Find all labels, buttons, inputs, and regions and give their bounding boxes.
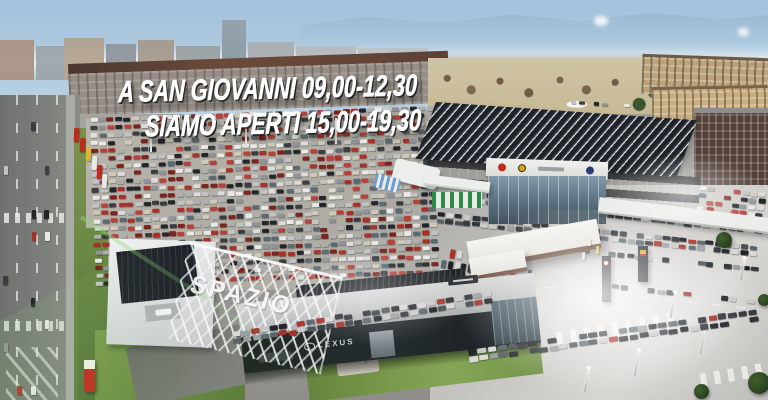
car (153, 233, 160, 237)
car (307, 325, 316, 331)
car (125, 163, 132, 167)
car (379, 217, 386, 221)
car (346, 234, 353, 238)
car (167, 155, 174, 159)
car (262, 221, 269, 225)
car (344, 320, 353, 326)
car (404, 216, 411, 220)
car (404, 200, 411, 204)
car (617, 253, 625, 258)
car (94, 242, 101, 246)
car (679, 237, 687, 242)
car (235, 167, 242, 171)
car (427, 300, 436, 306)
car (96, 274, 103, 278)
car (193, 192, 200, 196)
car (253, 213, 260, 217)
car (372, 256, 379, 260)
car (193, 184, 200, 188)
car (411, 192, 418, 196)
car (418, 302, 427, 308)
car (186, 200, 193, 204)
car (353, 163, 360, 167)
car (277, 173, 284, 177)
car (177, 177, 184, 181)
car (385, 147, 392, 151)
car (381, 255, 388, 259)
car (320, 179, 327, 183)
car (270, 324, 279, 330)
car (236, 214, 243, 218)
car (464, 294, 473, 300)
car (328, 218, 335, 222)
car (219, 207, 226, 211)
car (243, 152, 250, 156)
car (269, 206, 276, 210)
car (202, 208, 209, 212)
car (387, 209, 394, 213)
car (330, 242, 337, 246)
car (135, 210, 142, 214)
car (271, 229, 278, 233)
car (347, 265, 354, 269)
car (724, 264, 732, 269)
spazio-totem (84, 360, 95, 392)
car (210, 207, 217, 211)
car (245, 238, 252, 242)
totem-logo-shield (640, 250, 646, 256)
car (645, 240, 653, 245)
car (360, 147, 367, 151)
car (31, 386, 36, 395)
car (184, 169, 191, 173)
car (201, 176, 208, 180)
car (346, 225, 353, 229)
car (106, 117, 113, 121)
car (244, 206, 251, 210)
car (421, 223, 428, 227)
car (294, 149, 301, 153)
car (430, 239, 437, 243)
car (253, 237, 260, 241)
car (314, 258, 321, 262)
car (262, 229, 269, 233)
car (226, 184, 233, 188)
car (135, 194, 142, 198)
car (184, 161, 191, 165)
car (455, 296, 464, 302)
car (201, 145, 208, 149)
car (116, 164, 123, 168)
car (758, 192, 765, 197)
car (225, 145, 232, 149)
car (362, 310, 371, 316)
car (269, 159, 276, 163)
car (369, 162, 376, 166)
car (253, 222, 260, 226)
car (477, 348, 486, 354)
office-building (694, 108, 768, 188)
car (175, 169, 182, 173)
car (243, 190, 250, 194)
car (385, 139, 392, 143)
car (219, 199, 226, 203)
car (629, 334, 638, 340)
car (202, 223, 209, 227)
car (422, 239, 429, 243)
car (178, 201, 185, 205)
car (428, 306, 437, 312)
car (279, 236, 286, 240)
car (354, 226, 361, 230)
brand-totem (602, 256, 611, 302)
car (117, 187, 124, 191)
car (159, 178, 166, 182)
car (370, 194, 377, 198)
car (192, 153, 199, 157)
car (95, 281, 102, 285)
car (243, 159, 250, 163)
car (203, 200, 210, 204)
opening-hours-overlay: A SAN GIOVANNI 09,00-12,30 SIAMO APERTI … (118, 69, 535, 143)
car (90, 126, 97, 130)
car (261, 197, 268, 201)
car (244, 175, 251, 179)
car (143, 193, 150, 197)
car (518, 342, 527, 348)
car (328, 180, 335, 184)
car (288, 329, 297, 335)
car (95, 259, 102, 263)
pedestrian (368, 350, 370, 355)
car (579, 102, 585, 105)
glass-wing (490, 297, 540, 346)
car (361, 170, 368, 174)
car (309, 157, 316, 161)
car (110, 195, 117, 199)
car (169, 177, 176, 181)
car (344, 179, 351, 183)
car (142, 155, 149, 159)
car (369, 147, 376, 151)
car (304, 220, 311, 224)
car (482, 291, 491, 297)
car (176, 146, 183, 150)
car (677, 319, 686, 325)
car (195, 231, 202, 235)
aerial-dealership-photo: SPAZIO LEXUS A SAN GIOVANNI 09,00-12,30 (0, 0, 768, 400)
car (732, 243, 740, 248)
car (465, 301, 474, 307)
car (208, 145, 215, 149)
car (415, 263, 422, 267)
car (44, 210, 49, 219)
car (202, 184, 209, 188)
car (313, 227, 320, 231)
car (17, 386, 22, 395)
car (142, 163, 149, 167)
brand-logo-red (498, 163, 506, 171)
car (355, 272, 362, 276)
car (389, 248, 396, 252)
car (627, 253, 635, 258)
car (469, 356, 478, 362)
car (92, 196, 99, 200)
car (210, 184, 217, 188)
car (445, 297, 454, 303)
car (380, 232, 387, 236)
car (245, 222, 252, 226)
car (285, 158, 292, 162)
car (688, 239, 696, 244)
car (109, 179, 116, 183)
car (411, 146, 418, 150)
car (254, 245, 261, 249)
car (236, 206, 243, 210)
car (345, 203, 352, 207)
car (153, 225, 160, 229)
car (176, 193, 183, 197)
car (327, 141, 334, 145)
car (326, 156, 333, 160)
car (269, 174, 276, 178)
car (348, 257, 355, 261)
car (262, 214, 269, 218)
car (243, 167, 250, 171)
car (201, 169, 208, 173)
car (218, 168, 225, 172)
car (252, 182, 259, 186)
car (93, 211, 100, 215)
car (152, 217, 159, 221)
car (270, 332, 279, 338)
car (177, 208, 184, 212)
car (353, 202, 360, 206)
car (218, 144, 225, 148)
car (150, 162, 157, 166)
car (313, 235, 320, 239)
car (479, 354, 488, 360)
car (294, 181, 301, 185)
car (100, 148, 107, 152)
car (177, 232, 184, 236)
car (159, 155, 166, 159)
car (95, 251, 102, 255)
car (396, 216, 403, 220)
car (168, 200, 175, 204)
car (4, 166, 9, 175)
car (260, 151, 267, 155)
car (599, 338, 608, 344)
car (609, 336, 618, 342)
car (498, 352, 507, 358)
car (169, 231, 176, 235)
car (680, 326, 689, 332)
car (310, 149, 317, 153)
car (201, 160, 208, 164)
car (359, 155, 366, 159)
car (322, 250, 329, 254)
car (285, 181, 292, 185)
car (151, 170, 158, 174)
brand-totem (638, 246, 648, 282)
car (306, 319, 315, 325)
car (151, 178, 158, 182)
car (354, 234, 361, 238)
car (296, 251, 303, 255)
showroom-door (369, 330, 396, 358)
car (698, 261, 706, 266)
car (343, 147, 350, 151)
car (110, 211, 117, 215)
flag-banner (80, 138, 86, 152)
car (302, 157, 309, 161)
car (251, 166, 258, 170)
car (227, 160, 234, 164)
car (187, 232, 194, 236)
car (404, 192, 411, 196)
car (389, 232, 396, 236)
car (119, 195, 126, 199)
car (278, 221, 285, 225)
car (371, 210, 378, 214)
car (193, 169, 200, 173)
car (468, 349, 477, 355)
car (260, 174, 267, 178)
car (708, 315, 717, 321)
car (168, 193, 175, 197)
car (336, 322, 345, 328)
car (304, 250, 311, 254)
car (489, 353, 498, 359)
car (356, 265, 363, 269)
car (343, 140, 350, 144)
entrance-glass (488, 176, 606, 224)
car (168, 186, 175, 190)
car (456, 250, 462, 259)
car (297, 327, 306, 333)
car (351, 147, 358, 151)
car (276, 165, 283, 169)
car (322, 265, 329, 269)
car (437, 305, 446, 311)
car (336, 195, 343, 199)
car (201, 152, 208, 156)
car (310, 164, 317, 168)
car (278, 228, 285, 232)
car (377, 146, 384, 150)
car (337, 203, 344, 207)
car (412, 215, 419, 219)
flag-banner (86, 147, 92, 161)
car (184, 146, 191, 150)
car (343, 314, 352, 320)
car (363, 209, 370, 213)
car (371, 201, 378, 205)
car (750, 192, 757, 197)
car (211, 230, 218, 234)
car (312, 203, 319, 207)
car (108, 141, 115, 145)
car (227, 199, 234, 203)
car (295, 205, 302, 209)
tree (748, 372, 768, 394)
car (379, 210, 386, 214)
car (102, 235, 109, 239)
car (376, 139, 383, 143)
car (354, 319, 363, 325)
car (445, 219, 453, 224)
car (201, 192, 208, 196)
car (728, 312, 737, 318)
car (368, 155, 375, 159)
car (409, 138, 416, 142)
car (594, 102, 600, 105)
car (297, 258, 304, 262)
car (279, 252, 286, 256)
car (292, 142, 299, 146)
car (321, 234, 328, 238)
car (99, 126, 106, 130)
car (279, 330, 288, 336)
car (547, 338, 556, 344)
car (31, 298, 36, 307)
car (378, 162, 385, 166)
car (406, 247, 413, 251)
car (578, 333, 587, 339)
car (45, 232, 50, 241)
car (101, 203, 108, 207)
car (317, 324, 326, 330)
car (133, 155, 140, 159)
car (395, 193, 402, 197)
car (252, 335, 261, 341)
car (126, 178, 133, 182)
car (329, 203, 336, 207)
car (305, 258, 312, 262)
brand-logo-blue (586, 166, 594, 174)
car (365, 264, 372, 268)
car (135, 226, 142, 230)
car (178, 216, 185, 220)
car (268, 197, 275, 201)
car (429, 223, 436, 227)
car (4, 343, 9, 352)
service-station (424, 178, 490, 216)
car (732, 203, 739, 208)
car (697, 246, 705, 251)
car (296, 220, 303, 224)
car (431, 231, 438, 235)
car (402, 154, 409, 158)
car (168, 216, 175, 220)
car (119, 203, 126, 207)
totem-logo-red-circle (603, 260, 609, 266)
car (220, 223, 227, 227)
car (302, 180, 309, 184)
car (118, 210, 125, 214)
car (356, 257, 363, 261)
car (414, 232, 421, 236)
car (107, 125, 114, 129)
car (373, 264, 380, 268)
car (364, 272, 371, 276)
car (671, 243, 679, 248)
car (706, 201, 713, 206)
car (748, 205, 755, 210)
car (238, 237, 245, 241)
car (259, 166, 266, 170)
